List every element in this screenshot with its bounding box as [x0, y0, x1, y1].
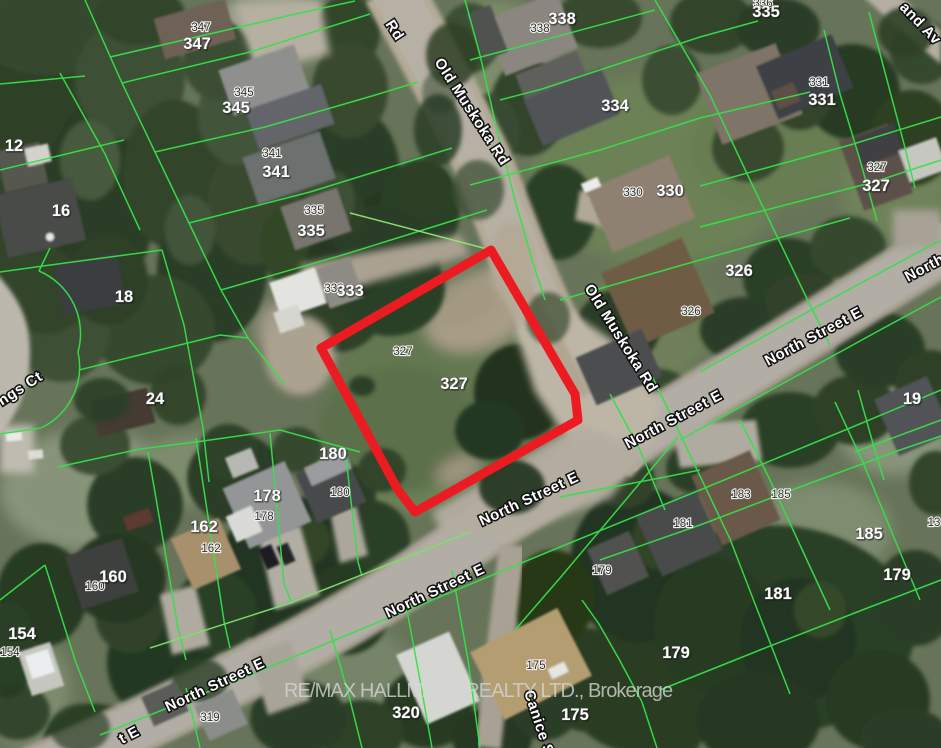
svg-text:327: 327	[862, 177, 890, 195]
svg-text:24: 24	[146, 390, 165, 408]
svg-text:327: 327	[393, 346, 412, 358]
svg-text:154: 154	[8, 625, 36, 643]
svg-text:178: 178	[254, 511, 273, 523]
svg-text:185: 185	[855, 525, 883, 543]
svg-text:326: 326	[681, 306, 700, 318]
svg-text:326: 326	[725, 262, 753, 280]
svg-text:183: 183	[731, 489, 750, 501]
svg-text:178: 178	[253, 487, 281, 505]
svg-text:345: 345	[222, 99, 250, 117]
svg-text:179: 179	[883, 566, 911, 584]
svg-text:180: 180	[330, 487, 349, 499]
svg-text:335: 335	[752, 3, 780, 21]
svg-text:175: 175	[526, 660, 545, 672]
svg-text:330: 330	[623, 187, 642, 199]
svg-text:154: 154	[0, 647, 20, 659]
svg-text:18: 18	[115, 288, 133, 306]
svg-text:19: 19	[903, 390, 921, 408]
svg-text:331: 331	[809, 77, 828, 89]
svg-text:330: 330	[656, 182, 684, 200]
svg-text:347: 347	[191, 22, 210, 34]
svg-text:347: 347	[183, 35, 211, 53]
svg-text:12: 12	[5, 137, 23, 155]
svg-text:162: 162	[190, 518, 218, 536]
svg-text:334: 334	[601, 97, 629, 115]
svg-text:160: 160	[99, 568, 127, 586]
svg-text:181: 181	[673, 518, 692, 530]
svg-text:320: 320	[392, 704, 420, 722]
svg-text:333: 333	[336, 282, 364, 300]
svg-text:341: 341	[262, 163, 290, 181]
svg-text:181: 181	[764, 585, 792, 603]
svg-text:319: 319	[200, 712, 219, 724]
svg-text:175: 175	[561, 706, 589, 724]
svg-text:13: 13	[928, 517, 941, 529]
svg-text:16: 16	[52, 202, 70, 220]
svg-text:331: 331	[808, 91, 836, 109]
svg-text:327: 327	[867, 162, 886, 174]
svg-text:341: 341	[262, 148, 281, 160]
svg-text:335: 335	[304, 205, 323, 217]
svg-text:185: 185	[771, 489, 790, 501]
svg-text:162: 162	[201, 543, 220, 555]
svg-text:RE/MAX HALLMARK REALTY LTD., B: RE/MAX HALLMARK REALTY LTD., Brokerage	[284, 680, 673, 702]
svg-text:345: 345	[234, 87, 253, 99]
svg-text:179: 179	[592, 565, 611, 577]
svg-text:338: 338	[530, 23, 549, 35]
svg-text:338: 338	[548, 10, 576, 28]
svg-text:335: 335	[297, 222, 325, 240]
svg-text:179: 179	[662, 644, 690, 662]
svg-text:327: 327	[440, 375, 468, 393]
svg-text:180: 180	[319, 445, 347, 463]
